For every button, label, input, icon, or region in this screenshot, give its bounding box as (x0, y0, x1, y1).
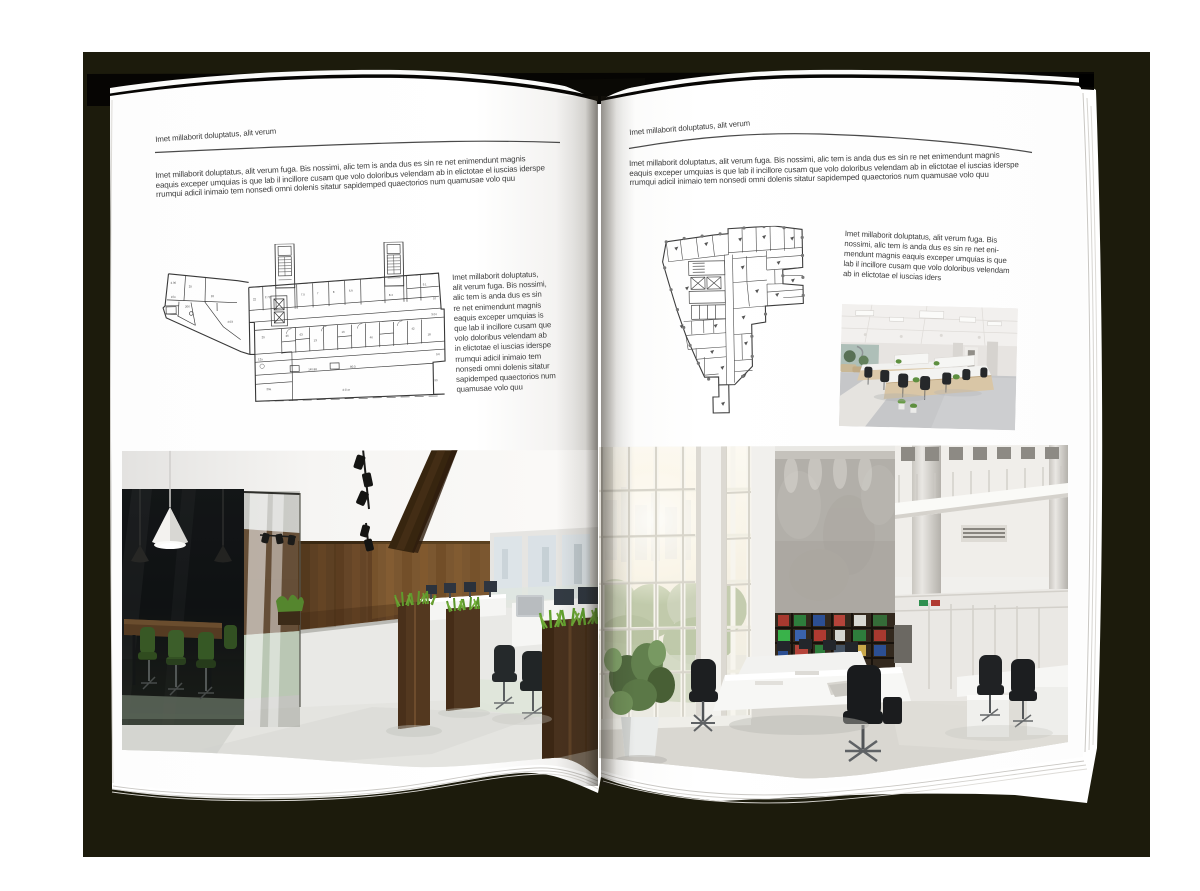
svg-text:46: 46 (370, 335, 374, 339)
svg-text:26: 26 (286, 334, 290, 338)
svg-text:10: 10 (433, 296, 437, 300)
svg-text:12a: 12a (258, 357, 263, 361)
svg-text:7.5: 7.5 (301, 292, 305, 296)
svg-text:29a: 29a (266, 387, 271, 391)
svg-text:5.9: 5.9 (349, 289, 353, 293)
svg-text:206: 206 (185, 304, 190, 308)
svg-text:42: 42 (411, 327, 415, 331)
svg-text:8.4: 8.4 (389, 293, 393, 297)
svg-text:9.1: 9.1 (423, 282, 427, 286)
svg-text:25: 25 (189, 284, 193, 288)
svg-text:22: 22 (253, 297, 257, 301)
svg-text:2.06: 2.06 (171, 281, 177, 285)
svg-text:9.6: 9.6 (436, 352, 440, 356)
svg-text:63: 63 (300, 333, 304, 337)
svg-text:140.88: 140.88 (308, 367, 317, 371)
svg-text:26: 26 (211, 294, 215, 298)
svg-text:13: 13 (314, 338, 318, 342)
svg-text:8: 8 (333, 290, 335, 294)
svg-text:29: 29 (262, 335, 266, 339)
svg-text:80.3: 80.3 (350, 365, 356, 369)
svg-text:7: 7 (317, 291, 319, 295)
svg-text:18: 18 (428, 332, 432, 336)
svg-text:90: 90 (434, 378, 438, 382)
svg-text:10a: 10a (171, 295, 176, 299)
svg-text:4.03: 4.03 (227, 320, 233, 324)
svg-text:3.04: 3.04 (431, 312, 437, 316)
svg-text:16: 16 (341, 330, 345, 334)
svg-text:2.72: 2.72 (265, 295, 271, 299)
svg-text:2-й эт: 2-й эт (343, 388, 351, 392)
